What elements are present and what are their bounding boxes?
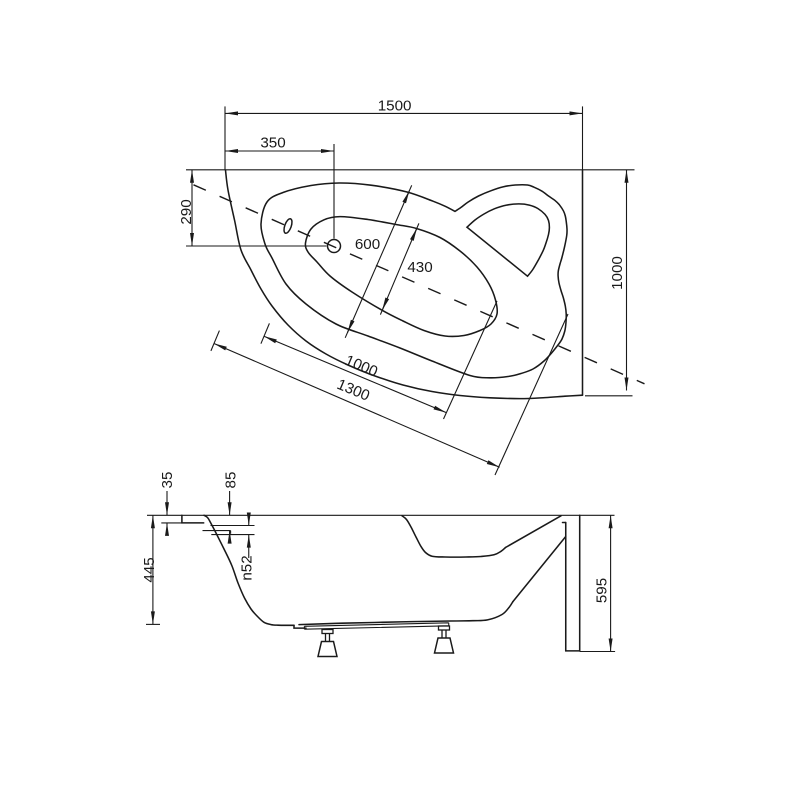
svg-text:350: 350 (260, 135, 285, 152)
svg-text:595: 595 (594, 578, 611, 603)
svg-text:1500: 1500 (378, 98, 412, 115)
svg-text:35: 35 (159, 472, 176, 489)
svg-text:445: 445 (141, 557, 158, 582)
svg-text:1000: 1000 (609, 256, 626, 290)
svg-text:290: 290 (178, 199, 195, 224)
svg-text:600: 600 (355, 236, 380, 253)
svg-text:430: 430 (407, 259, 432, 276)
svg-text:85: 85 (223, 472, 240, 489)
svg-text:n52: n52 (239, 555, 256, 580)
